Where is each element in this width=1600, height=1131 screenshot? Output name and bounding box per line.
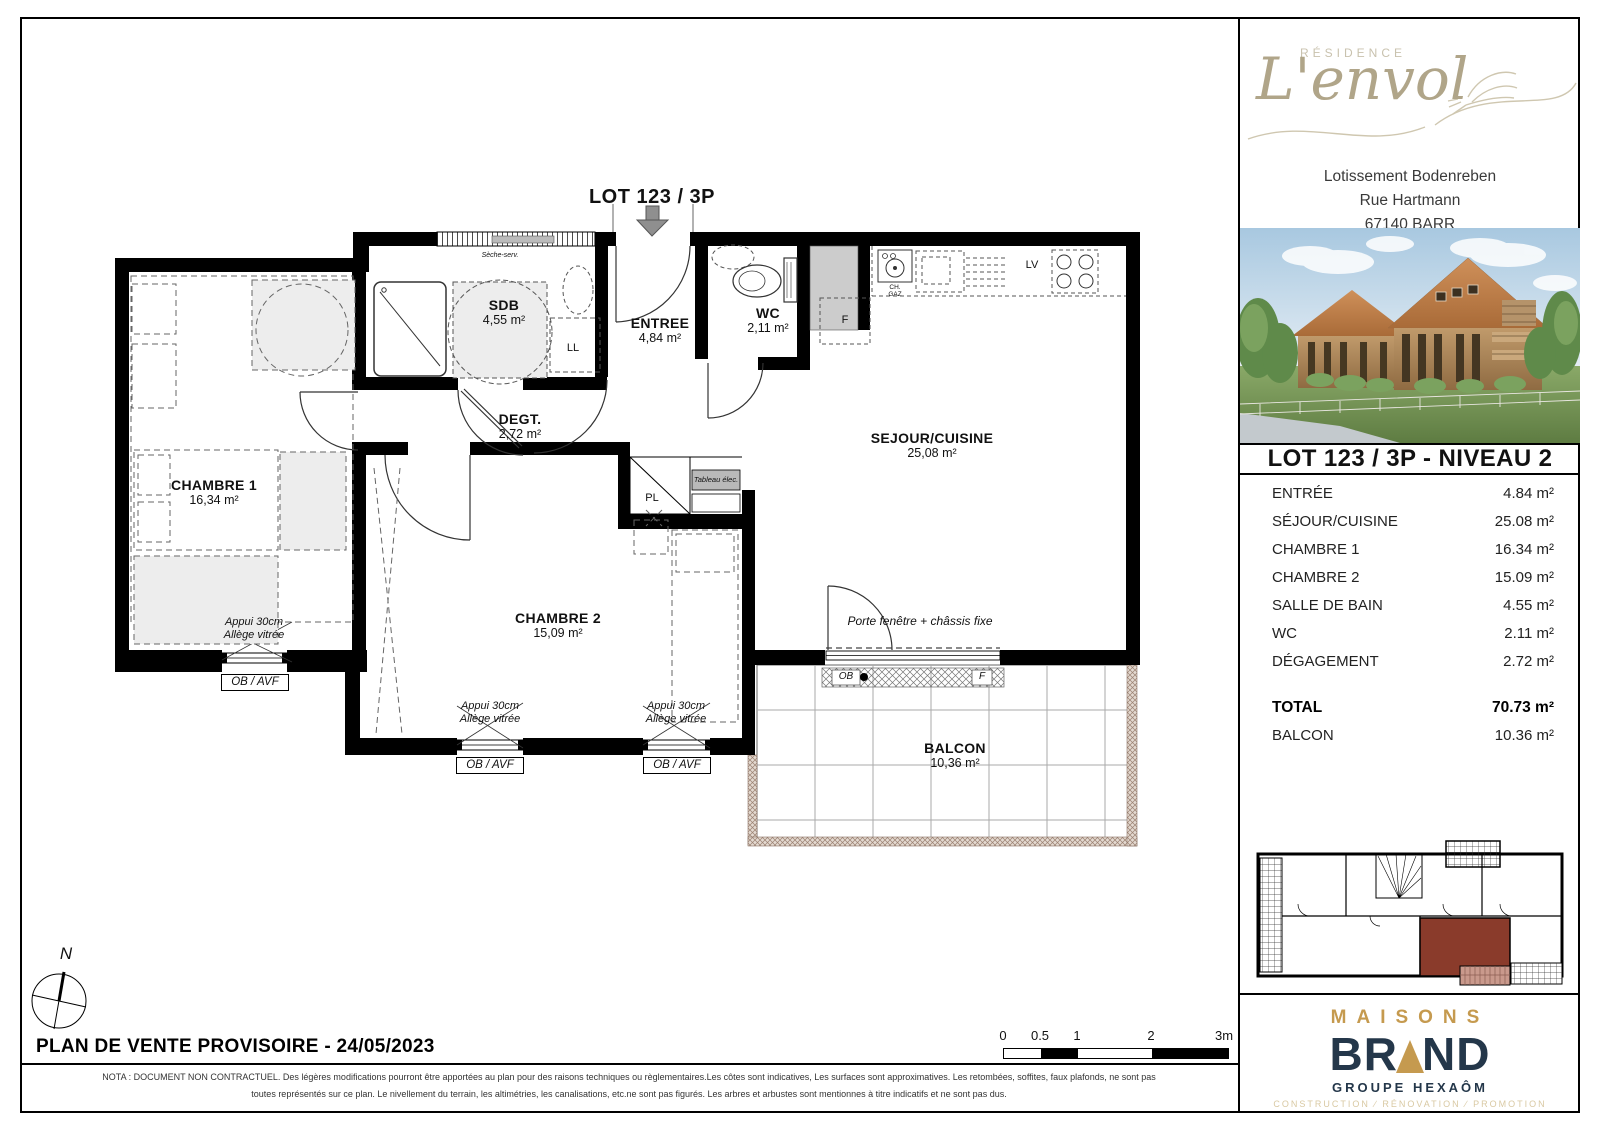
scale-tick-2: 2 (1147, 1028, 1154, 1043)
floor-plan-drawing (0, 0, 1600, 1131)
sill-f-label: F (979, 671, 985, 682)
room-label-sdb: SDB 4,55 m² (483, 297, 525, 328)
window-note-chambre2a: Appui 30cm Allège vitrée (460, 700, 521, 726)
window-type-chambre2a: OB / AVF (456, 757, 524, 774)
tableau-elec-label: Tableau élec. (694, 475, 738, 484)
window-note-chambre2b: Appui 30cm Allège vitrée (646, 700, 707, 726)
scale-tick-0: 0 (999, 1028, 1006, 1043)
placard-label: PL (645, 492, 658, 504)
scale-tick-1: 1 (1073, 1028, 1080, 1043)
porte-fenetre-label: Porte fenêtre + châssis fixe (847, 614, 992, 628)
room-label-chambre1: CHAMBRE 1 16,34 m² (171, 477, 257, 508)
room-label-entree: ENTREE 4,84 m² (631, 315, 690, 346)
room-label-degt: DEGT. 2,72 m² (499, 411, 542, 442)
window-note-chambre1: Appui 30cm Allège vitrée (224, 616, 285, 642)
room-label-sejour: SEJOUR/CUISINE 25,08 m² (871, 430, 993, 461)
window-type-chambre2b: OB / AVF (643, 757, 711, 774)
lave-linge-label: LL (567, 342, 579, 354)
window-type-chambre1: OB / AVF (221, 674, 289, 691)
room-label-chambre2: CHAMBRE 2 15,09 m² (515, 610, 601, 641)
room-label-balcon: BALCON 10,36 m² (924, 740, 986, 771)
north-label: N (60, 944, 72, 964)
frigo-label: F (842, 314, 849, 326)
footer-divider (22, 1063, 1238, 1065)
nota-disclaimer: NOTA : DOCUMENT NON CONTRACTUEL. Des lég… (22, 1069, 1236, 1103)
seche-serviette-label: Sèche-serv. (482, 252, 519, 259)
chaudiere-gaz-label: CH. GAZ (882, 284, 908, 298)
scale-tick-05: 0.5 (1031, 1028, 1049, 1043)
scale-tick-3m: 3m (1215, 1028, 1233, 1043)
plan-sale-title: PLAN DE VENTE PROVISOIRE - 24/05/2023 (36, 1036, 435, 1058)
lave-vaisselle-label: LV (1026, 259, 1039, 271)
room-label-wc: WC 2,11 m² (747, 305, 788, 336)
sill-ob-label: OB (839, 671, 853, 682)
lot-header: LOT 123 / 3P (589, 186, 715, 209)
